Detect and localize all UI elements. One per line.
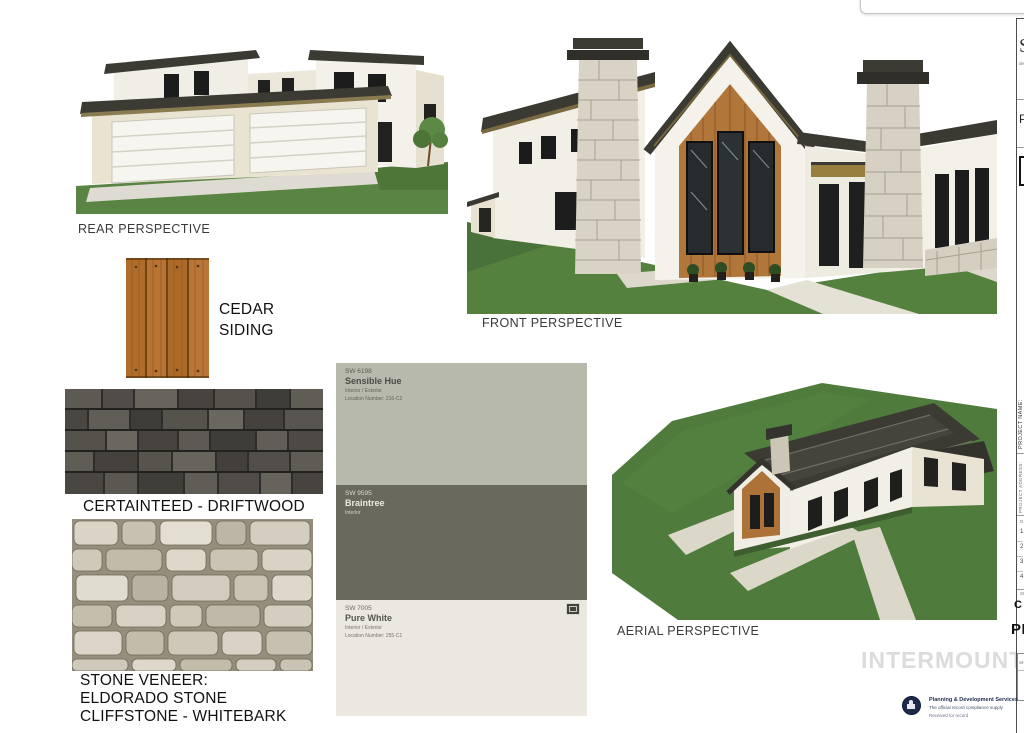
shingle-swatch <box>65 389 323 494</box>
titleblock-logo-subtext: design <box>1019 61 1024 66</box>
cedar-siding-swatch <box>126 258 209 378</box>
stamp-line1: Planning & Development Services <box>929 697 1018 703</box>
sheet-code-c: C <box>1014 599 1022 611</box>
project-address-label: PROJECT ADDRESS: <box>1018 457 1023 513</box>
titleblock-logo-letter: S <box>1019 35 1024 58</box>
stone-label-line3: CLIFFSTONE - WHITEBARK <box>80 708 287 726</box>
sheet-note: SH <box>1020 591 1024 596</box>
paint-sub1: Interior / Exterior <box>345 388 587 394</box>
project-name-label: PROJECT NAME: <box>1018 391 1024 449</box>
chip-logo-icon <box>566 603 580 615</box>
shingle-label: CERTAINTEED - DRIFTWOOD <box>83 498 305 516</box>
paint-swatch-pure-white: SW 7005 Pure White Interior / Exterior L… <box>336 600 587 716</box>
titleblock-checkbox <box>1019 156 1024 186</box>
paint-swatch-sensible-hue: SW 6198 Sensible Hue Interior / Exterior… <box>336 363 587 485</box>
titleblock-letter-p: P <box>1019 112 1024 126</box>
intermountain-watermark: INTERMOUNTAIN <box>861 647 1024 674</box>
cedar-label-line2: SIDING <box>219 320 274 341</box>
paint-code: SW 9595 <box>345 490 587 497</box>
city-seal-icon <box>902 696 921 715</box>
revision-row-3: 3 <box>1020 559 1023 565</box>
stamp-line2: The official record compliance supply <box>929 705 1003 710</box>
stamp-line3: Received for record <box>929 713 968 718</box>
paint-sub2: Location Number: 216-C2 <box>345 396 587 402</box>
rear-perspective-label: REAR PERSPECTIVE <box>78 222 210 236</box>
revision-header: D <box>1020 519 1023 524</box>
paint-code: SW 7005 <box>345 605 587 612</box>
sheet-number-box: SHEET <box>1017 653 1024 701</box>
cedar-siding-label: CEDAR SIDING <box>219 299 274 341</box>
paint-name: Sensible Hue <box>345 376 587 386</box>
paint-code: SW 6198 <box>345 368 587 375</box>
revision-row-1: 1 <box>1020 529 1023 535</box>
rear-perspective-render <box>76 44 448 214</box>
paint-name: Pure White <box>345 613 587 623</box>
paint-sub1: Interior <box>345 510 587 516</box>
aerial-perspective-render <box>612 383 997 620</box>
aerial-perspective-label: AERIAL PERSPECTIVE <box>617 624 759 638</box>
sheet-box-note: SHEET <box>1019 660 1024 665</box>
paint-sub1: Interior / Exterior <box>345 625 587 631</box>
front-perspective-label: FRONT PERSPECTIVE <box>482 316 623 330</box>
stone-label-line1: STONE VENEER: <box>80 672 287 690</box>
title-block-panel: S design P PROJECT NAME: PROJECT ADDRESS… <box>1016 18 1024 733</box>
paint-name: Braintree <box>345 498 587 508</box>
paint-swatch-braintree: SW 9595 Braintree Interior <box>336 485 587 600</box>
revision-row-4: 4 <box>1020 574 1023 580</box>
revision-row-2: 2 <box>1020 544 1023 550</box>
empty-tooltip-overlay <box>860 0 1024 14</box>
stone-veneer-label: STONE VENEER: ELDORADO STONE CLIFFSTONE … <box>80 672 287 726</box>
stone-veneer-swatch <box>72 519 313 671</box>
presentation-sheet: REAR PERSPECTIVE <box>0 0 1024 733</box>
cedar-label-line1: CEDAR <box>219 299 274 320</box>
front-perspective-render <box>467 22 997 314</box>
stone-label-line2: ELDORADO STONE <box>80 690 287 708</box>
paint-sub2: Location Number: 255-C1 <box>345 633 587 639</box>
sheet-code-pe: PE <box>1011 621 1024 638</box>
